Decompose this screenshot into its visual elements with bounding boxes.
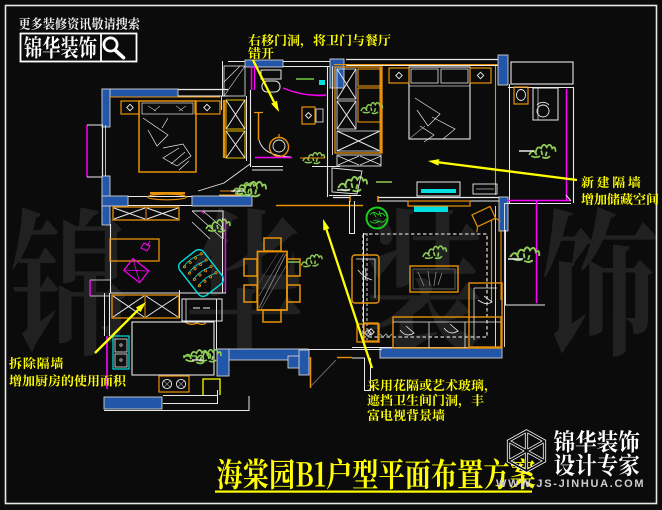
- svg-text:WWW.JS-JINHUA.COM: WWW.JS-JINHUA.COM: [496, 478, 645, 490]
